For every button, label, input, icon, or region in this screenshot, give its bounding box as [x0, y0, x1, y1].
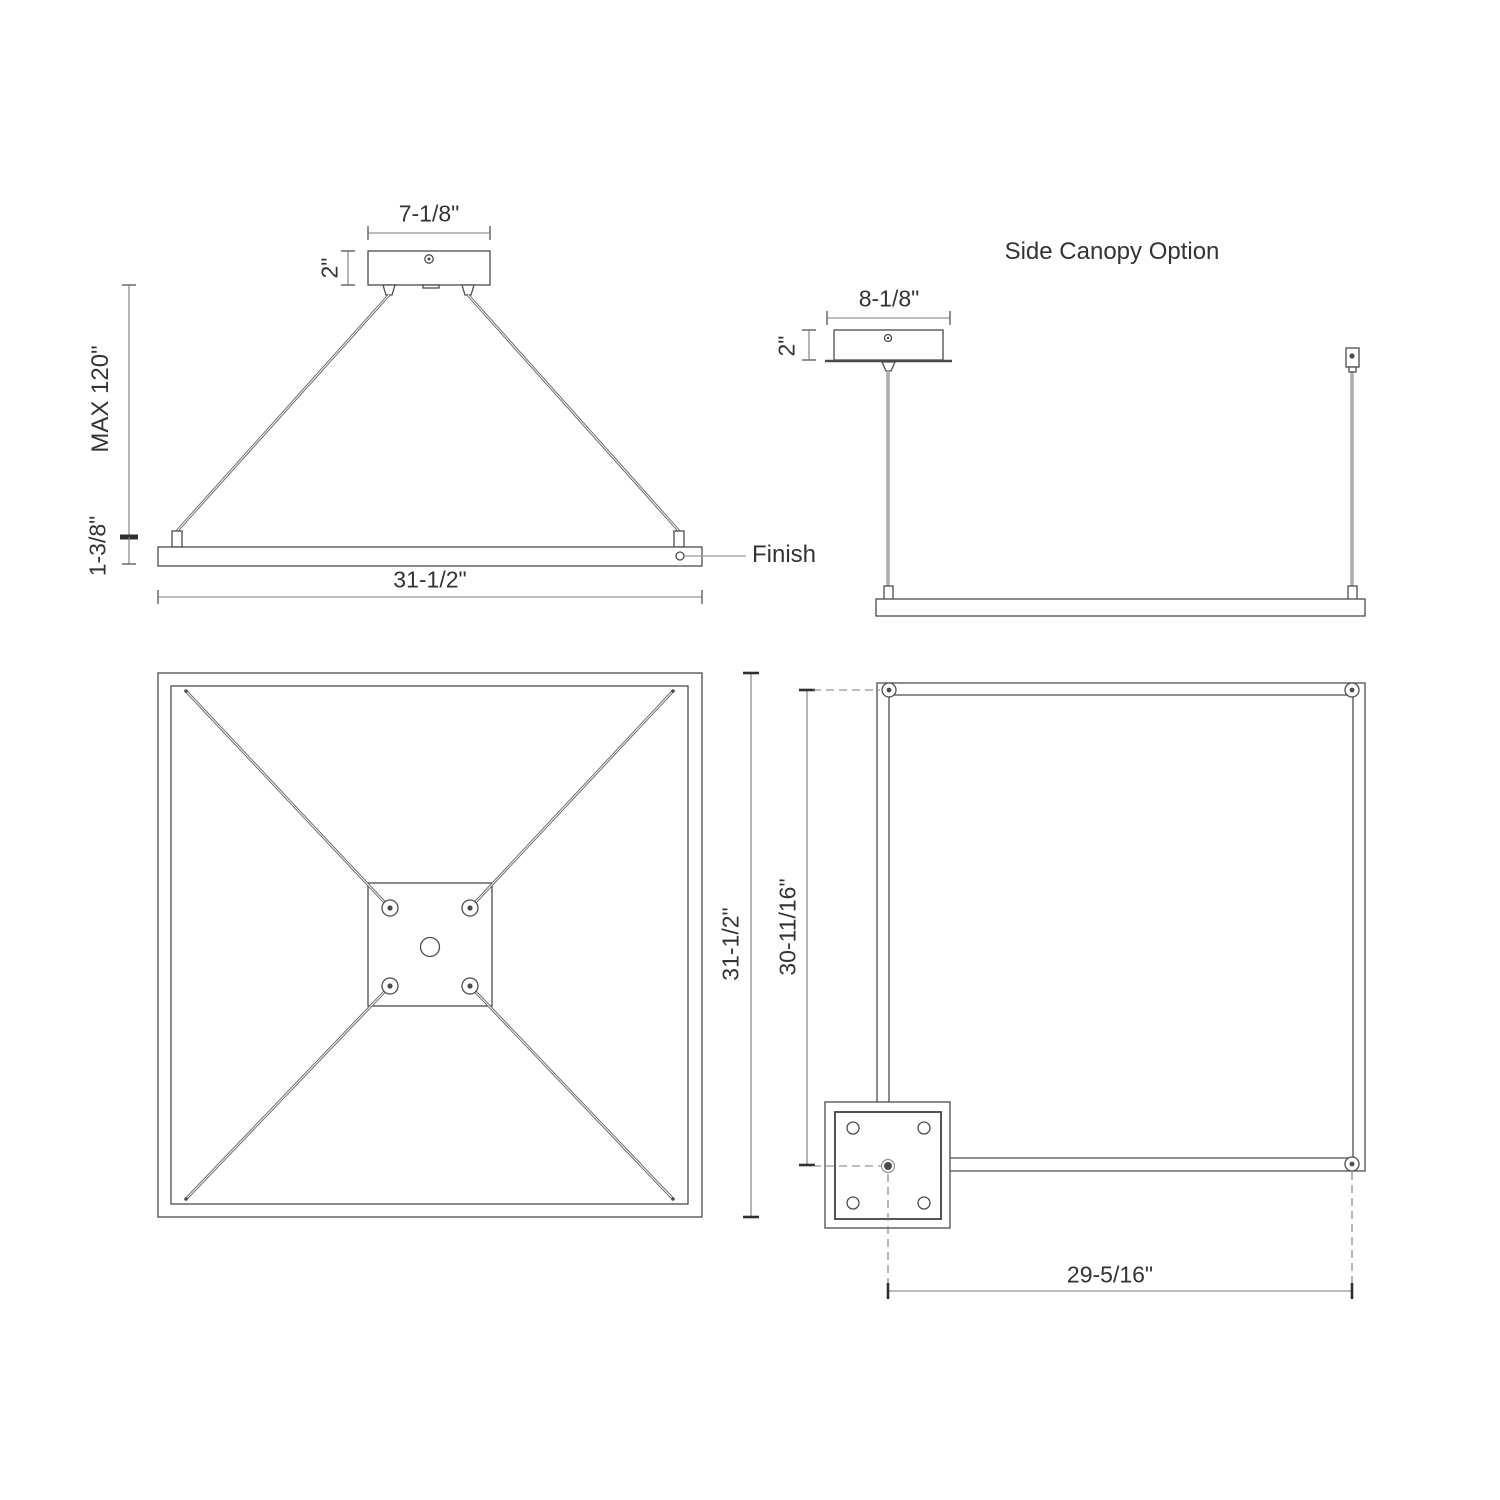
technical-drawing: [0, 0, 1500, 1500]
plan2-center-point: [884, 1162, 892, 1170]
front-ferrule-right: [674, 531, 684, 547]
label-side-canopy-title: Side Canopy Option: [1005, 238, 1220, 266]
front-frame-bar: [158, 547, 702, 566]
label-front-canopy-width: 7-1/8": [399, 201, 460, 228]
side-ferrule-right: [1348, 586, 1357, 600]
front-suspension-cables: [177, 295, 679, 531]
dim-frame-thickness: [122, 537, 136, 564]
front-elevation-view: [120, 226, 746, 604]
label-front-frame-width: 31-1/2": [393, 567, 466, 594]
side-suspension-cables: [888, 371, 1352, 586]
label-frame-thickness: 1-3/8": [85, 516, 112, 577]
label-plan2-width: 29-5/16": [1067, 1262, 1153, 1289]
side-ferrule-left: [884, 586, 893, 600]
side-canopy-elevation-view: [802, 311, 1365, 616]
side-canopy-plan-view: [799, 683, 1365, 1299]
plan-corner-anchor-tl: [184, 689, 188, 693]
front-canopy-screw-dot: [428, 258, 431, 261]
front-ferrule-left: [172, 531, 182, 547]
side-canopy-screw-dot: [887, 337, 889, 339]
plan-view: [158, 673, 759, 1217]
front-canopy-notch: [423, 285, 439, 288]
label-plan-overall: 31-1/2": [718, 907, 745, 980]
label-side-canopy-width: 8-1/8": [859, 286, 920, 313]
plan-corner-anchor-br: [671, 1197, 675, 1201]
plan2-corner-anchors: [882, 683, 1359, 1171]
spec-sheet-canvas: 7-1/8" 2" MAX 120" 1-3/8" 31-1/2" Finish…: [0, 0, 1500, 1500]
dim-side-canopy-height: [802, 330, 816, 360]
side-cable-gripper: [1346, 348, 1359, 372]
plan2-frame-inner: [889, 695, 1353, 1158]
dim-plan-overall: [743, 673, 759, 1217]
dim-side-canopy-width: [827, 311, 950, 325]
side-cable-gland: [882, 362, 895, 371]
label-plan2-height: 30-11/16": [775, 878, 802, 975]
front-cable-gland-right: [462, 285, 474, 295]
dim-max-suspension: [120, 285, 138, 537]
label-max-suspension: MAX 120": [87, 345, 115, 452]
label-front-canopy-height: 2": [317, 258, 344, 279]
dim-front-canopy-width: [368, 226, 490, 240]
plan-corner-anchor-bl: [184, 1197, 188, 1201]
front-cable-gland-left: [383, 285, 395, 295]
side-frame-bar: [876, 599, 1365, 616]
label-side-canopy-height: 2": [774, 336, 801, 357]
dim-plan2-height: [799, 690, 881, 1166]
label-finish: Finish: [752, 541, 816, 569]
plan-corner-anchor-tr: [671, 689, 675, 693]
plan2-frame-outer: [877, 683, 1365, 1171]
front-canopy: [368, 251, 490, 285]
